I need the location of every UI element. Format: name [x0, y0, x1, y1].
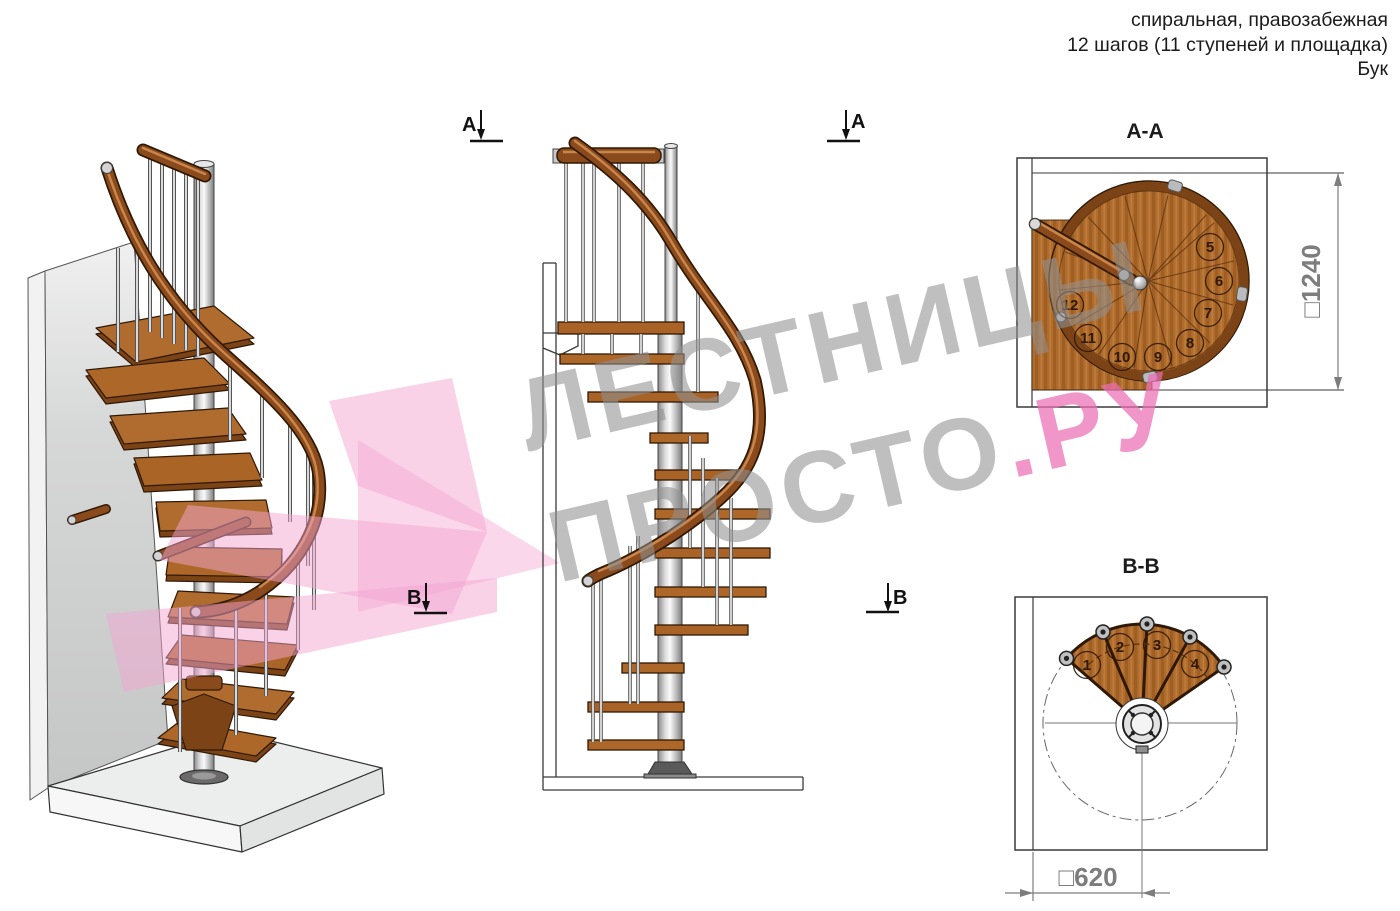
aa-dimension: □1240 — [1296, 173, 1342, 390]
section-aa-view: 5 6 7 8 9 10 11 12 A-A □1240 — [1017, 120, 1344, 407]
marker-b-right: B — [866, 583, 907, 612]
step — [560, 354, 684, 364]
step — [655, 587, 766, 597]
step-number: 3 — [1153, 637, 1161, 654]
step-number: 12 — [1062, 297, 1079, 314]
staircase-drawing: 5 6 7 8 9 10 11 12 A-A □1240 — [0, 0, 1400, 911]
marker-label: A — [462, 114, 476, 136]
stair-material: Бук — [1067, 57, 1388, 82]
step-number: 5 — [1206, 239, 1214, 256]
step-number: 9 — [1154, 349, 1162, 366]
step-number: 11 — [1080, 330, 1096, 347]
marker-label: B — [407, 587, 421, 609]
stair-steps-count: 12 шагов (11 ступеней и площадка) — [1067, 33, 1388, 58]
step-number: 7 — [1204, 305, 1212, 322]
bb-pole-hub — [1116, 698, 1168, 753]
pole-top-ball — [1133, 276, 1147, 290]
marker-a-right: A — [827, 110, 865, 141]
marker-a-left: A — [462, 110, 503, 141]
step — [655, 470, 743, 480]
aa-section-title: A-A — [1126, 120, 1163, 143]
step — [110, 408, 246, 450]
title-block: спиральная, правозабежная 12 шагов (11 с… — [1067, 8, 1388, 82]
bb-dimension: □620 — [1005, 852, 1170, 901]
marker-label: A — [851, 111, 865, 133]
step-number: 1 — [1083, 657, 1091, 674]
marker-label: B — [893, 587, 907, 609]
step — [650, 433, 708, 443]
step-number: 8 — [1186, 335, 1194, 352]
step — [588, 392, 718, 402]
stair-type: спиральная, правозабежная — [1067, 8, 1388, 33]
elevation-view — [543, 141, 803, 790]
step — [558, 322, 684, 334]
step-number: 2 — [1116, 639, 1124, 656]
step — [655, 548, 770, 558]
bb-dimension-label: □620 — [1058, 862, 1117, 892]
step — [134, 453, 262, 492]
step-number: 6 — [1215, 273, 1223, 290]
step-number: 10 — [1114, 349, 1131, 366]
section-bb-view: 1 2 3 4 B-B □620 — [1005, 555, 1267, 901]
step-number: 4 — [1191, 656, 1200, 673]
step — [655, 625, 748, 635]
left-3d-view — [28, 148, 384, 852]
bb-section-title: B-B — [1122, 555, 1159, 578]
drawing-sheet: 5 6 7 8 9 10 11 12 A-A □1240 — [0, 0, 1400, 911]
bb-step-fan: 1 2 3 4 — [1060, 617, 1232, 753]
aa-dimension-label: □1240 — [1296, 244, 1326, 318]
ribbon-tail — [106, 578, 497, 692]
elevation-balusters — [566, 163, 731, 742]
